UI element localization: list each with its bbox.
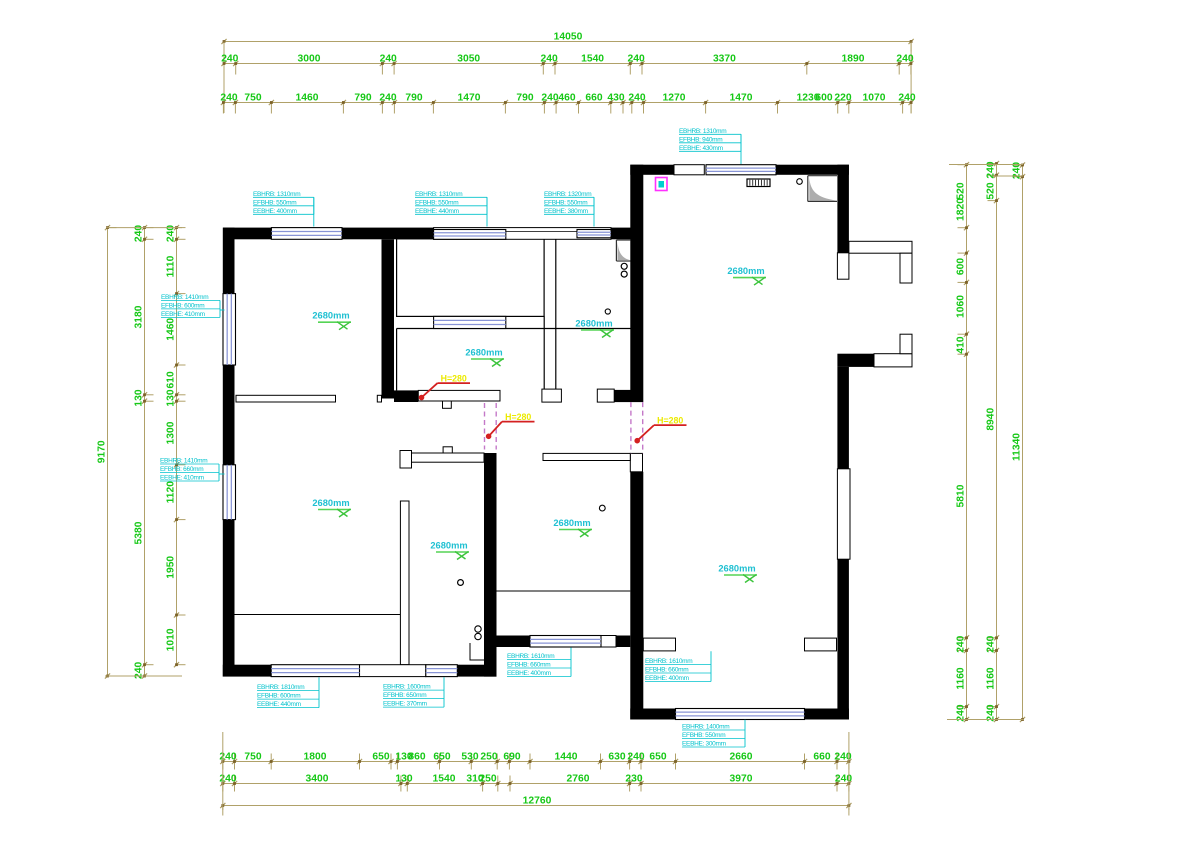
svg-text:130: 130 xyxy=(395,774,412,785)
svg-text:EFBHB: 550mm: EFBHB: 550mm xyxy=(415,199,458,206)
svg-text:EBHRB: 1310mm: EBHRB: 1310mm xyxy=(415,191,462,198)
svg-text:230: 230 xyxy=(625,774,642,785)
svg-text:240: 240 xyxy=(541,54,558,65)
svg-text:660: 660 xyxy=(813,752,830,763)
svg-text:EBHRB: 1600mm: EBHRB: 1600mm xyxy=(383,684,430,691)
svg-text:3970: 3970 xyxy=(730,774,753,785)
svg-text:600: 600 xyxy=(956,258,967,275)
svg-text:H=280: H=280 xyxy=(441,373,467,383)
svg-text:1010: 1010 xyxy=(166,628,177,651)
svg-text:3180: 3180 xyxy=(134,305,145,328)
svg-text:5810: 5810 xyxy=(956,484,967,507)
svg-text:EEBHE: 300mm: EEBHE: 300mm xyxy=(682,741,726,748)
svg-text:430: 430 xyxy=(607,93,624,104)
svg-text:3000: 3000 xyxy=(298,54,321,65)
svg-text:1460: 1460 xyxy=(166,318,177,341)
svg-text:130: 130 xyxy=(134,389,145,406)
svg-text:240: 240 xyxy=(221,54,238,65)
svg-text:600: 600 xyxy=(815,93,832,104)
svg-text:1540: 1540 xyxy=(581,54,604,65)
svg-text:EFBHB: 550mm: EFBHB: 550mm xyxy=(544,199,587,206)
svg-text:240: 240 xyxy=(898,93,915,104)
svg-text:460: 460 xyxy=(558,93,575,104)
svg-text:1110: 1110 xyxy=(166,255,177,277)
svg-text:240: 240 xyxy=(986,635,997,652)
svg-text:EEBHE: 400mm: EEBHE: 400mm xyxy=(645,675,689,682)
svg-text:H=280: H=280 xyxy=(505,412,531,422)
svg-text:EBHRB: 1410mm: EBHRB: 1410mm xyxy=(161,294,208,301)
svg-text:750: 750 xyxy=(244,93,261,104)
svg-text:860: 860 xyxy=(408,752,425,763)
svg-text:1440: 1440 xyxy=(555,752,578,763)
svg-text:240: 240 xyxy=(219,774,236,785)
svg-text:750: 750 xyxy=(244,752,261,763)
svg-text:790: 790 xyxy=(516,93,533,104)
svg-text:EBHRB: 1410mm: EBHRB: 1410mm xyxy=(160,458,207,465)
svg-text:EFBHB: 940mm: EFBHB: 940mm xyxy=(679,136,722,143)
svg-text:1950: 1950 xyxy=(166,556,177,579)
svg-text:2760: 2760 xyxy=(567,774,590,785)
svg-text:8940: 8940 xyxy=(986,407,997,430)
svg-text:240: 240 xyxy=(956,704,967,721)
svg-text:3050: 3050 xyxy=(457,54,480,65)
svg-text:EEBHE: 440mm: EEBHE: 440mm xyxy=(257,701,301,708)
svg-text:660: 660 xyxy=(585,93,602,104)
svg-text:790: 790 xyxy=(354,93,371,104)
svg-text:220: 220 xyxy=(834,93,851,104)
svg-text:2680mm: 2680mm xyxy=(312,498,349,508)
svg-text:EBHRB: 1320mm: EBHRB: 1320mm xyxy=(544,191,591,198)
svg-text:EBHRB: 1310mm: EBHRB: 1310mm xyxy=(253,191,300,198)
svg-text:1300: 1300 xyxy=(166,421,177,444)
svg-text:1890: 1890 xyxy=(842,54,865,65)
svg-text:EEBHE: 380mm: EEBHE: 380mm xyxy=(544,208,588,215)
svg-text:2680mm: 2680mm xyxy=(553,518,590,528)
svg-text:EEBHE: 440mm: EEBHE: 440mm xyxy=(415,208,459,215)
svg-text:EFBHB: 660mm: EFBHB: 660mm xyxy=(645,667,688,674)
svg-text:240: 240 xyxy=(219,752,236,763)
svg-text:EFBHB: 550mm: EFBHB: 550mm xyxy=(682,732,725,739)
svg-text:2680mm: 2680mm xyxy=(465,348,502,358)
svg-text:EEBHE: 370mm: EEBHE: 370mm xyxy=(383,701,427,708)
svg-text:5380: 5380 xyxy=(134,521,145,544)
svg-text:1470: 1470 xyxy=(458,93,481,104)
svg-text:EEBHE: 400mm: EEBHE: 400mm xyxy=(507,670,551,677)
svg-text:1120: 1120 xyxy=(166,481,177,504)
svg-text:EFBHB: 650mm: EFBHB: 650mm xyxy=(383,692,426,699)
svg-text:650: 650 xyxy=(372,752,389,763)
svg-text:790: 790 xyxy=(405,93,422,104)
svg-text:11340: 11340 xyxy=(1012,433,1023,461)
svg-text:530: 530 xyxy=(461,752,478,763)
svg-text:240: 240 xyxy=(379,93,396,104)
svg-text:H=280: H=280 xyxy=(657,415,683,425)
svg-text:2680mm: 2680mm xyxy=(718,564,755,574)
svg-text:EFBHB: 600mm: EFBHB: 600mm xyxy=(161,302,204,309)
svg-text:3370: 3370 xyxy=(713,54,736,65)
svg-text:240: 240 xyxy=(628,54,645,65)
svg-text:9170: 9170 xyxy=(97,440,108,463)
svg-text:1060: 1060 xyxy=(956,295,967,318)
svg-text:2680mm: 2680mm xyxy=(430,541,467,551)
svg-text:2680mm: 2680mm xyxy=(727,266,764,276)
svg-text:EBHRB: 1610mm: EBHRB: 1610mm xyxy=(507,653,554,660)
svg-text:2660: 2660 xyxy=(730,752,753,763)
svg-text:EBHRB: 1400mm: EBHRB: 1400mm xyxy=(682,724,729,731)
svg-text:EEBHE: 410mm: EEBHE: 410mm xyxy=(161,311,205,318)
svg-text:1160: 1160 xyxy=(986,667,997,690)
svg-text:1820: 1820 xyxy=(956,198,967,221)
svg-text:EFBHB: 660mm: EFBHB: 660mm xyxy=(160,466,203,473)
svg-text:1470: 1470 xyxy=(730,93,753,104)
svg-text:14050: 14050 xyxy=(554,32,583,43)
svg-text:240: 240 xyxy=(380,54,397,65)
svg-text:EEBHE: 430mm: EEBHE: 430mm xyxy=(679,145,723,152)
svg-text:1160: 1160 xyxy=(956,667,967,690)
svg-text:610: 610 xyxy=(166,371,177,388)
svg-text:EBHRB: 1610mm: EBHRB: 1610mm xyxy=(645,658,692,665)
svg-text:12760: 12760 xyxy=(523,796,552,807)
svg-text:650: 650 xyxy=(433,752,450,763)
svg-text:650: 650 xyxy=(649,752,666,763)
svg-text:690: 690 xyxy=(503,752,520,763)
svg-text:240: 240 xyxy=(627,752,644,763)
svg-text:EFBHB: 660mm: EFBHB: 660mm xyxy=(507,662,550,669)
svg-text:240: 240 xyxy=(896,54,913,65)
svg-text:1460: 1460 xyxy=(296,93,319,104)
svg-text:1270: 1270 xyxy=(663,93,686,104)
svg-text:520: 520 xyxy=(956,182,967,199)
svg-text:410: 410 xyxy=(956,336,967,353)
svg-text:240: 240 xyxy=(986,704,997,721)
svg-text:1540: 1540 xyxy=(433,774,456,785)
svg-text:EEBHE: 410mm: EEBHE: 410mm xyxy=(160,475,204,482)
svg-text:2680mm: 2680mm xyxy=(312,311,349,321)
svg-text:240: 240 xyxy=(220,93,237,104)
svg-text:520: 520 xyxy=(986,182,997,199)
svg-text:250: 250 xyxy=(479,774,496,785)
svg-text:1800: 1800 xyxy=(304,752,327,763)
svg-text:240: 240 xyxy=(541,93,558,104)
svg-text:EEBHE: 400mm: EEBHE: 400mm xyxy=(253,208,297,215)
svg-text:3400: 3400 xyxy=(306,774,329,785)
svg-text:250: 250 xyxy=(480,752,497,763)
svg-text:EBHRB: 1810mm: EBHRB: 1810mm xyxy=(257,684,304,691)
svg-text:2680mm: 2680mm xyxy=(575,319,612,329)
svg-text:EBHRB: 1310mm: EBHRB: 1310mm xyxy=(679,128,726,135)
svg-text:240: 240 xyxy=(628,93,645,104)
svg-text:240: 240 xyxy=(956,635,967,652)
svg-text:EFBHB: 550mm: EFBHB: 550mm xyxy=(253,199,296,206)
svg-text:1070: 1070 xyxy=(863,93,886,104)
svg-text:EFBHB: 600mm: EFBHB: 600mm xyxy=(257,693,300,700)
svg-text:240: 240 xyxy=(835,774,852,785)
svg-text:130: 130 xyxy=(166,389,177,406)
svg-text:630: 630 xyxy=(608,752,625,763)
